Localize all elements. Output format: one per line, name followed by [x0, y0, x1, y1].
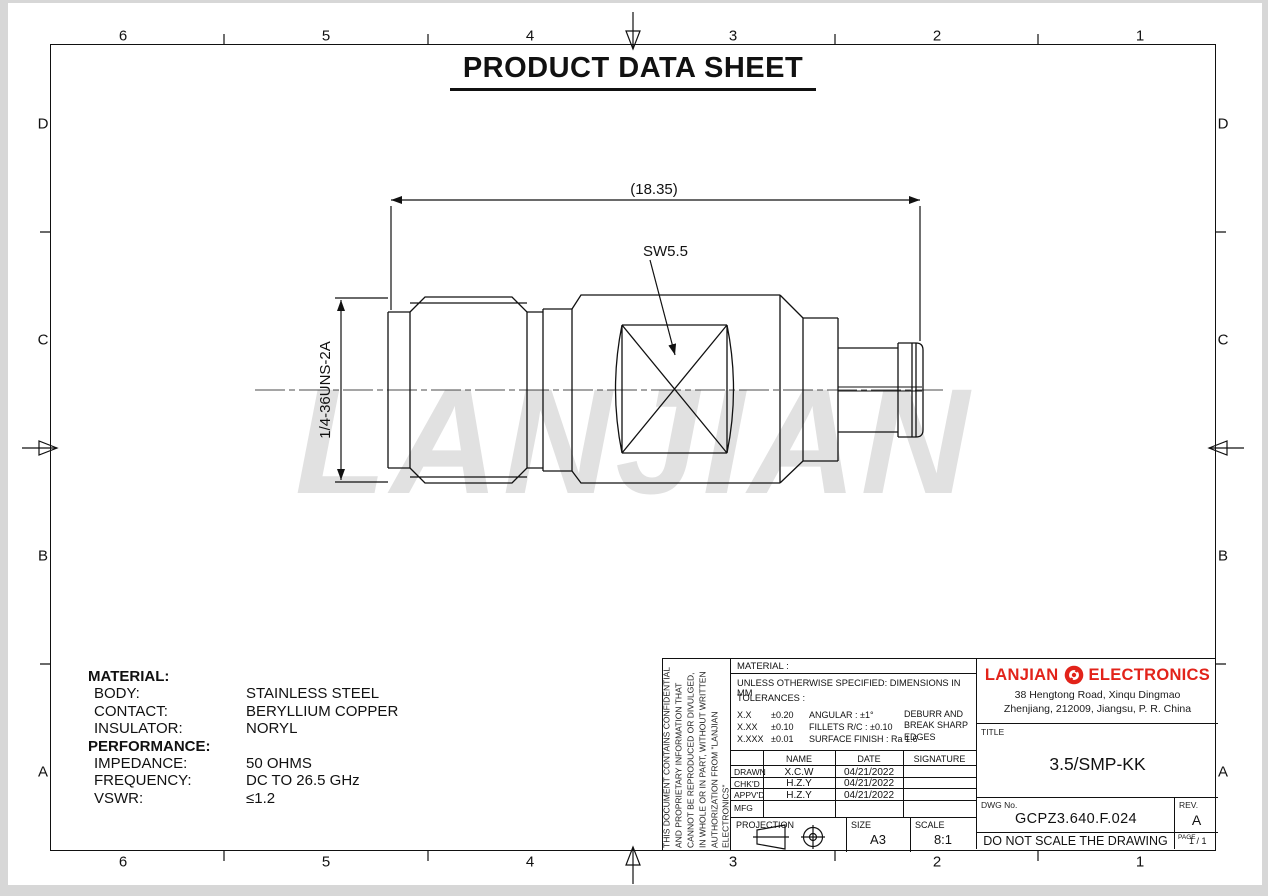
company-address-line1: 38 Hengtong Road, Xinqu Dingmao	[977, 688, 1218, 702]
specs-block: MATERIAL: BODY:STAINLESS STEEL CONTACT:B…	[88, 668, 398, 807]
taper-section	[780, 295, 803, 483]
title-block: THIS DOCUMENT CONTAINS CONFIDENTIAL AND …	[662, 658, 1216, 851]
third-angle-projection-icon	[753, 824, 833, 850]
approval-role: MFG	[734, 803, 753, 813]
hex-flat-marking	[616, 325, 734, 453]
rev-value: A	[1175, 808, 1218, 832]
title-block-middle: MATERIAL : UNLESS OTHERWISE SPECIFIED: D…	[731, 659, 976, 849]
tolerance-cell: FILLETS R/C : ±0.10	[809, 722, 892, 732]
spec-label: IMPEDANCE:	[88, 755, 246, 772]
company-name-left: LANJIAN	[985, 666, 1059, 685]
approval-name: X.C.W	[763, 766, 835, 778]
spec-label: VSWR:	[88, 790, 246, 807]
dwg-number: GCPZ3.640.F.024	[977, 806, 1175, 832]
approval-role: APPV'D	[734, 790, 764, 800]
tolerance-cell: X.XX	[737, 722, 765, 732]
page-box: PAGE 1 / 1	[1175, 833, 1218, 849]
confidential-strip: THIS DOCUMENT CONTAINS CONFIDENTIAL AND …	[663, 659, 731, 850]
step-cylinder	[803, 318, 838, 461]
approval-role: CHK'D	[734, 779, 760, 789]
approval-name: H.Z.Y	[763, 789, 835, 801]
col-header-name: NAME	[763, 751, 835, 766]
tolerance-cell: ANGULAR : ±1°	[809, 710, 874, 720]
approval-role: DRAWN	[734, 767, 766, 777]
company-logo-icon	[1064, 665, 1084, 685]
spec-value: 50 OHMS	[246, 755, 312, 772]
confidential-text: THIS DOCUMENT CONTAINS CONFIDENTIAL AND …	[661, 662, 732, 848]
col-header-signature: SIGNATURE	[903, 751, 976, 766]
deburr-note: DEBURR AND BREAK SHARP EDGES	[904, 709, 968, 743]
spec-value: STAINLESS STEEL	[246, 685, 379, 702]
company-logo: LANJIAN ELECTRONICS	[977, 665, 1218, 685]
do-not-scale-note: DO NOT SCALE THE DRAWING	[977, 833, 1175, 849]
spec-row: VSWR:≤1.2	[88, 790, 398, 807]
tolerance-cell: ±0.10	[771, 722, 793, 732]
wrench-leader-line	[650, 260, 675, 355]
company-name-right: ELECTRONICS	[1089, 666, 1211, 685]
scale-value: 8:1	[910, 828, 976, 850]
company-address-line2: Zhenjiang, 212009, Jiangsu, P. R. China	[977, 702, 1218, 716]
approval-row: MFG	[731, 801, 976, 818]
centering-arrow-right	[1209, 441, 1244, 455]
spec-row: INSULATOR:NORYL	[88, 720, 398, 737]
approval-row: CHK'D H.Z.Y 04/21/2022	[731, 778, 976, 789]
wrench-size-text: SW5.5	[643, 243, 688, 260]
approval-date: 04/21/2022	[835, 766, 903, 778]
main-body	[572, 295, 780, 483]
rev-box: REV. A	[1175, 798, 1218, 833]
spec-label: FREQUENCY:	[88, 772, 246, 789]
spec-row: BODY:STAINLESS STEEL	[88, 685, 398, 702]
approval-date: 04/21/2022	[835, 789, 903, 801]
tolerance-cell: X.X	[737, 710, 765, 720]
title-box: TITLE 3.5/SMP-KK	[977, 724, 1218, 798]
thread-spec-text: 1/4-36UNS-2A	[317, 341, 334, 439]
note-row: DO NOT SCALE THE DRAWING PAGE 1 / 1	[977, 833, 1218, 849]
company-box: LANJIAN ELECTRONICS 38 Hengtong Road, Xi…	[977, 659, 1218, 724]
tolerance-cell: X.XXX	[737, 734, 765, 744]
material-heading: MATERIAL:	[88, 668, 398, 685]
spec-row: FREQUENCY:DC TO 26.5 GHz	[88, 772, 398, 789]
spec-value: NORYL	[246, 720, 297, 737]
page-value: 1 / 1	[1189, 836, 1207, 846]
table-divider	[763, 751, 764, 818]
spec-label: INSULATOR:	[88, 720, 246, 737]
title-label: TITLE	[981, 727, 1004, 737]
connector-outline	[388, 295, 923, 483]
material-field-label: MATERIAL :	[731, 659, 976, 674]
tolerance-box: UNLESS OTHERWISE SPECIFIED: DIMENSIONS I…	[731, 674, 976, 751]
size-value: A3	[846, 828, 910, 850]
product-data-sheet-page: LANJIAN 6 5 4 3 2 1 6 5 4 3 2 1 D C B A …	[0, 0, 1268, 896]
spec-value: ≤1.2	[246, 790, 275, 807]
spec-row: CONTACT:BERYLLIUM COPPER	[88, 703, 398, 720]
dwg-row: DWG No. GCPZ3.640.F.024 REV. A	[977, 798, 1218, 833]
table-divider	[835, 751, 836, 818]
approval-row: APPV'D H.Z.Y 04/21/2022	[731, 789, 976, 801]
spec-value: DC TO 26.5 GHz	[246, 772, 360, 789]
table-divider	[903, 751, 904, 818]
spec-row: IMPEDANCE:50 OHMS	[88, 755, 398, 772]
spec-value: BERYLLIUM COPPER	[246, 703, 398, 720]
tolerance-cell: ±0.01	[771, 734, 793, 744]
title-block-right: LANJIAN ELECTRONICS 38 Hengtong Road, Xi…	[976, 659, 1217, 849]
centering-arrow-top	[626, 12, 640, 49]
centering-arrow-bottom	[626, 847, 640, 884]
tolerances-label: TOLERANCES :	[737, 693, 805, 703]
col-header-date: DATE	[835, 751, 903, 766]
projection-row: PROJECTION SIZE A3 SCALE 8:1	[731, 818, 976, 852]
spec-label: BODY:	[88, 685, 246, 702]
dim-overall-length-text: (18.35)	[630, 181, 678, 198]
approval-header-row: NAME DATE SIGNATURE	[731, 751, 976, 766]
approval-date: 04/21/2022	[835, 778, 903, 789]
tolerance-cell: SURFACE FINISH : Ra 1.6	[809, 734, 918, 744]
dimension-overall-length	[391, 200, 920, 341]
performance-heading: PERFORMANCE:	[88, 738, 398, 755]
centering-arrow-left	[22, 441, 57, 455]
approval-row: DRAWN X.C.W 04/21/2022	[731, 766, 976, 778]
approval-name: H.Z.Y	[763, 778, 835, 789]
dwg-number-box: DWG No. GCPZ3.640.F.024	[977, 798, 1175, 833]
part-title: 3.5/SMP-KK	[977, 738, 1218, 790]
tolerance-cell: ±0.20	[771, 710, 793, 720]
spec-label: CONTACT:	[88, 703, 246, 720]
